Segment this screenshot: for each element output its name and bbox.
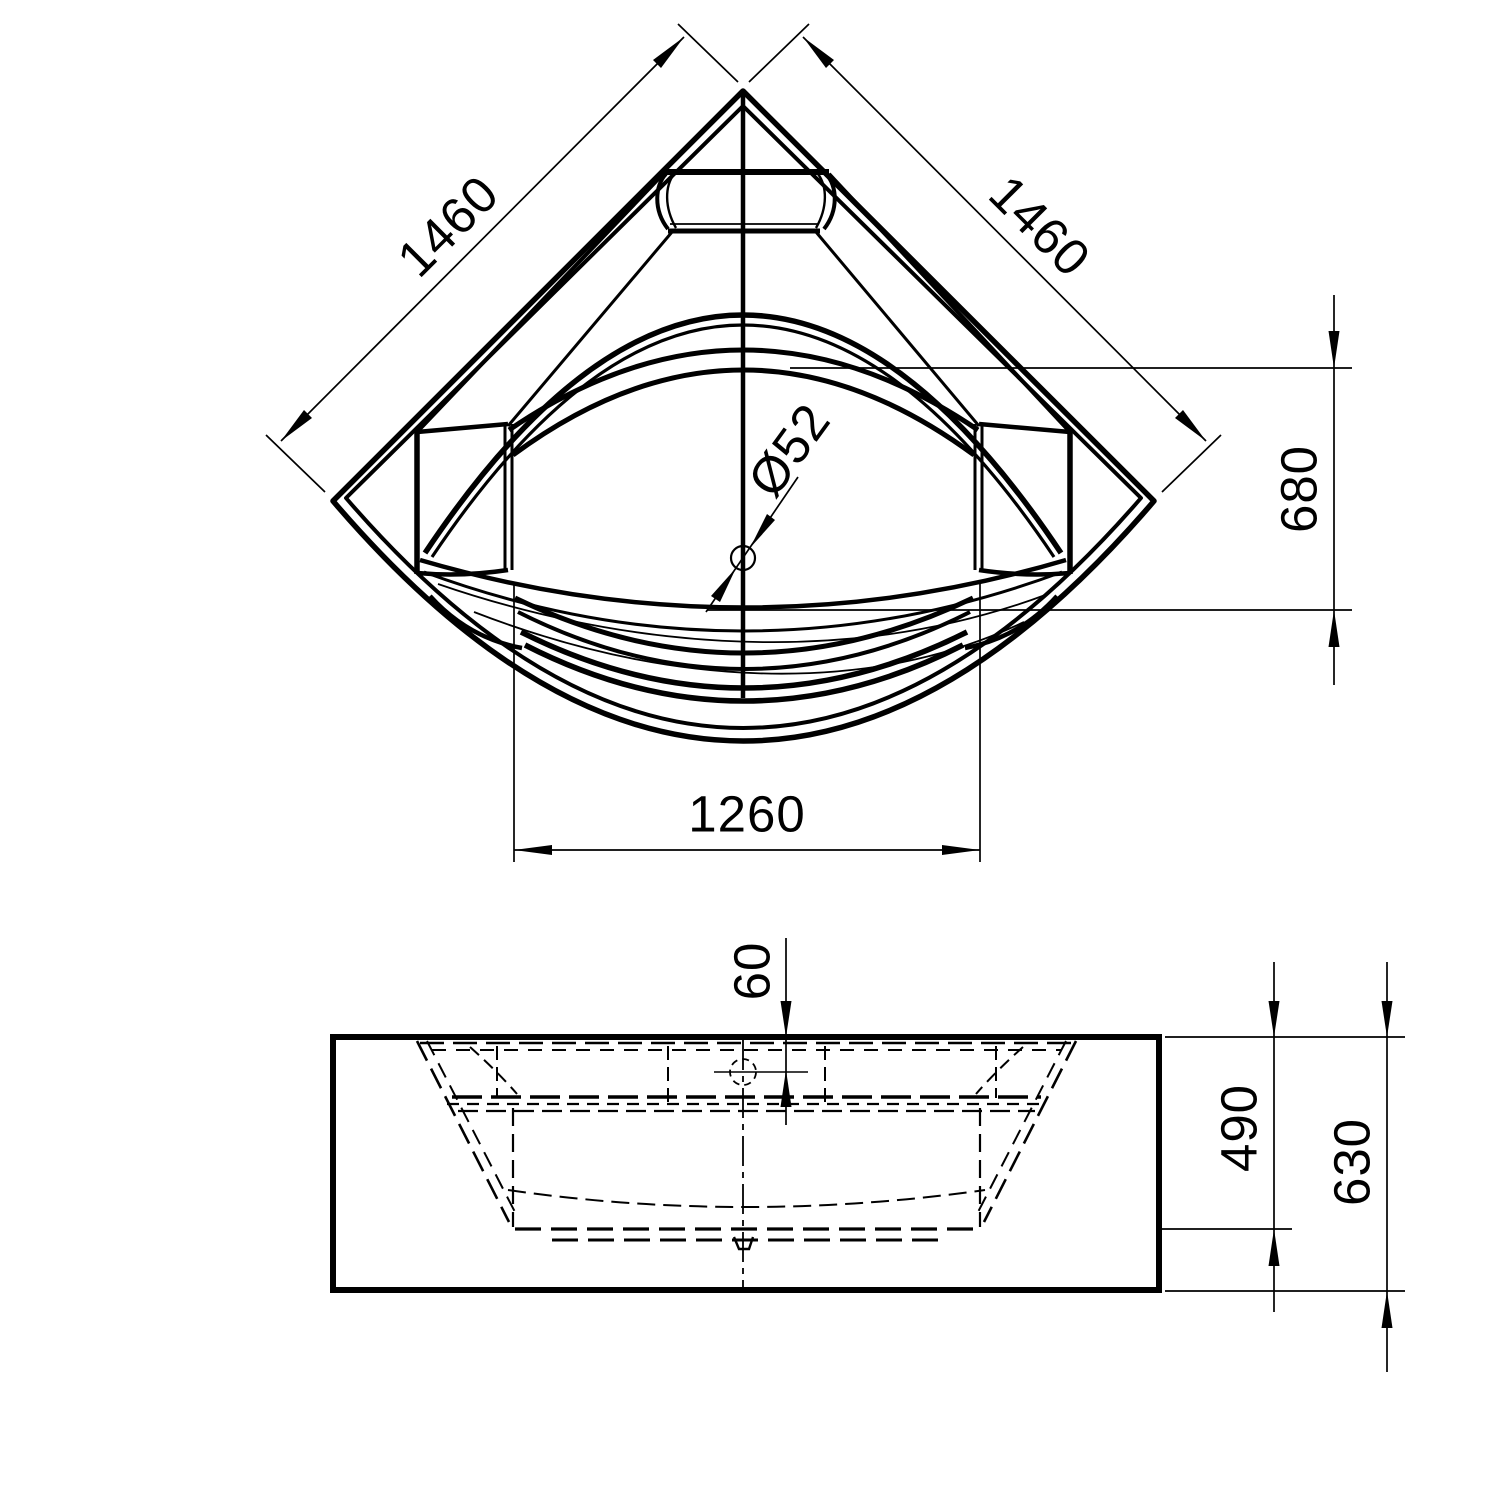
- headrest-side-left-inner: [667, 174, 676, 228]
- arrowhead: [653, 37, 684, 68]
- apron-outline: [333, 1037, 1159, 1290]
- arrowhead: [1382, 1001, 1393, 1037]
- dimension-label-1460-left: 1460: [386, 164, 509, 287]
- wall-left-inner: [427, 1041, 517, 1216]
- technical-drawing-page: 1460 1460 680 1260: [0, 0, 1500, 1500]
- arrowhead: [1329, 331, 1340, 368]
- dimension-label-630: 630: [1324, 1118, 1381, 1206]
- dimension-630: 630: [1165, 962, 1405, 1372]
- extension-line: [266, 435, 325, 492]
- arrowhead: [750, 514, 775, 548]
- arrowhead: [781, 1001, 792, 1037]
- dimension-line: [803, 37, 1206, 441]
- arrowhead: [1269, 1229, 1280, 1266]
- dimension-label-60: 60: [724, 942, 781, 1001]
- dimension-1460-left: 1460: [266, 24, 738, 492]
- extension-line: [1162, 435, 1221, 492]
- dimension-label-490: 490: [1211, 1084, 1268, 1172]
- armrest-right-top-edge: [979, 424, 1070, 432]
- inner-curve-left: [470, 1047, 517, 1094]
- top-view: 1460 1460 680 1260: [266, 24, 1352, 862]
- arrowhead: [1382, 1291, 1393, 1328]
- bathtub-technical-drawing: 1460 1460 680 1260: [0, 0, 1500, 1500]
- arrowhead: [1175, 410, 1206, 441]
- arrowhead: [781, 1070, 792, 1107]
- inner-curve-right: [976, 1047, 1023, 1094]
- floor-curve: [508, 1190, 985, 1207]
- arrowhead: [942, 845, 980, 855]
- arrowhead: [803, 37, 834, 68]
- arrowhead: [1269, 1001, 1280, 1037]
- extension-line: [678, 24, 738, 82]
- wall-right-inner: [976, 1041, 1066, 1216]
- dimension-label-1460-right: 1460: [978, 164, 1101, 287]
- headrest: [657, 172, 835, 231]
- wall-right-outer: [984, 1041, 1076, 1222]
- deck-inner-left: [508, 232, 672, 426]
- hidden-profile: [417, 1041, 1076, 1240]
- deck-inner-right: [816, 232, 979, 426]
- dimension-label-drain: Ø52: [737, 393, 842, 507]
- armrest-left-top-edge: [417, 424, 508, 432]
- wall-left-outer: [417, 1041, 509, 1222]
- dimension-490: 490: [1162, 962, 1292, 1312]
- arrowhead: [281, 410, 312, 441]
- side-view: 60 490 630: [333, 938, 1405, 1372]
- dimension-label-680: 680: [1271, 445, 1328, 533]
- extension-line: [749, 24, 809, 82]
- dimension-line: [281, 37, 684, 441]
- dimension-label-1260: 1260: [688, 786, 805, 843]
- dimension-drain-diameter: Ø52: [706, 393, 841, 612]
- arrowhead: [711, 568, 736, 602]
- arrowhead: [1329, 610, 1340, 647]
- arrowhead: [514, 845, 552, 855]
